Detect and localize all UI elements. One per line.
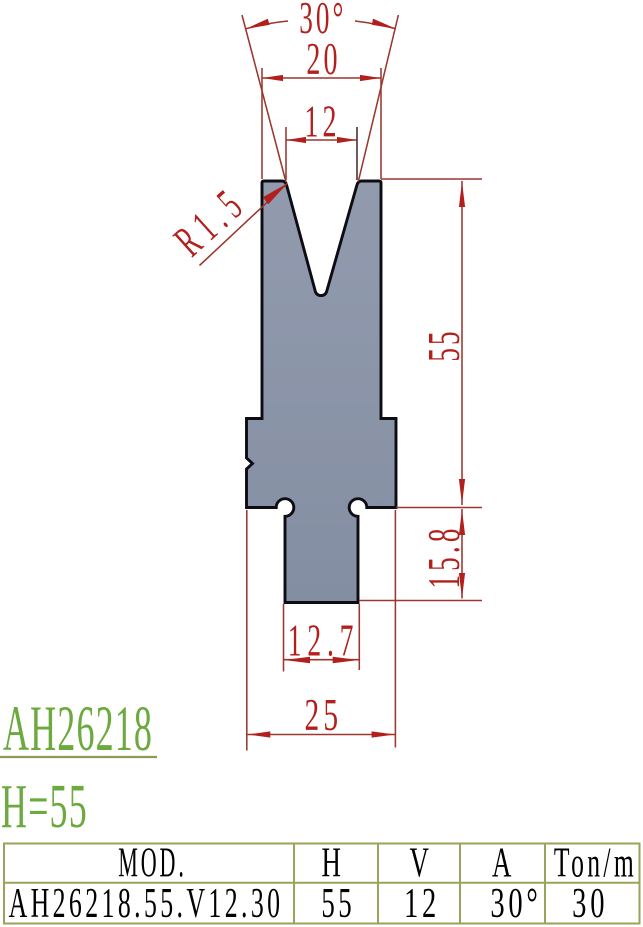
svg-text:AH26218.55.V12.30: AH26218.55.V12.30 xyxy=(9,879,284,926)
svg-text:30°: 30° xyxy=(490,879,541,926)
svg-text:20: 20 xyxy=(306,34,340,84)
svg-text:25: 25 xyxy=(304,691,342,741)
svg-text:H=55: H=55 xyxy=(1,772,88,841)
svg-text:12.7: 12.7 xyxy=(288,617,360,667)
svg-text:12: 12 xyxy=(304,97,340,147)
svg-text:AH26218: AH26218 xyxy=(3,693,153,765)
svg-text:55: 55 xyxy=(420,328,470,361)
svg-text:15.8: 15.8 xyxy=(420,524,470,588)
svg-text:12: 12 xyxy=(404,879,440,926)
svg-text:30: 30 xyxy=(572,879,608,926)
svg-text:55: 55 xyxy=(321,880,355,926)
